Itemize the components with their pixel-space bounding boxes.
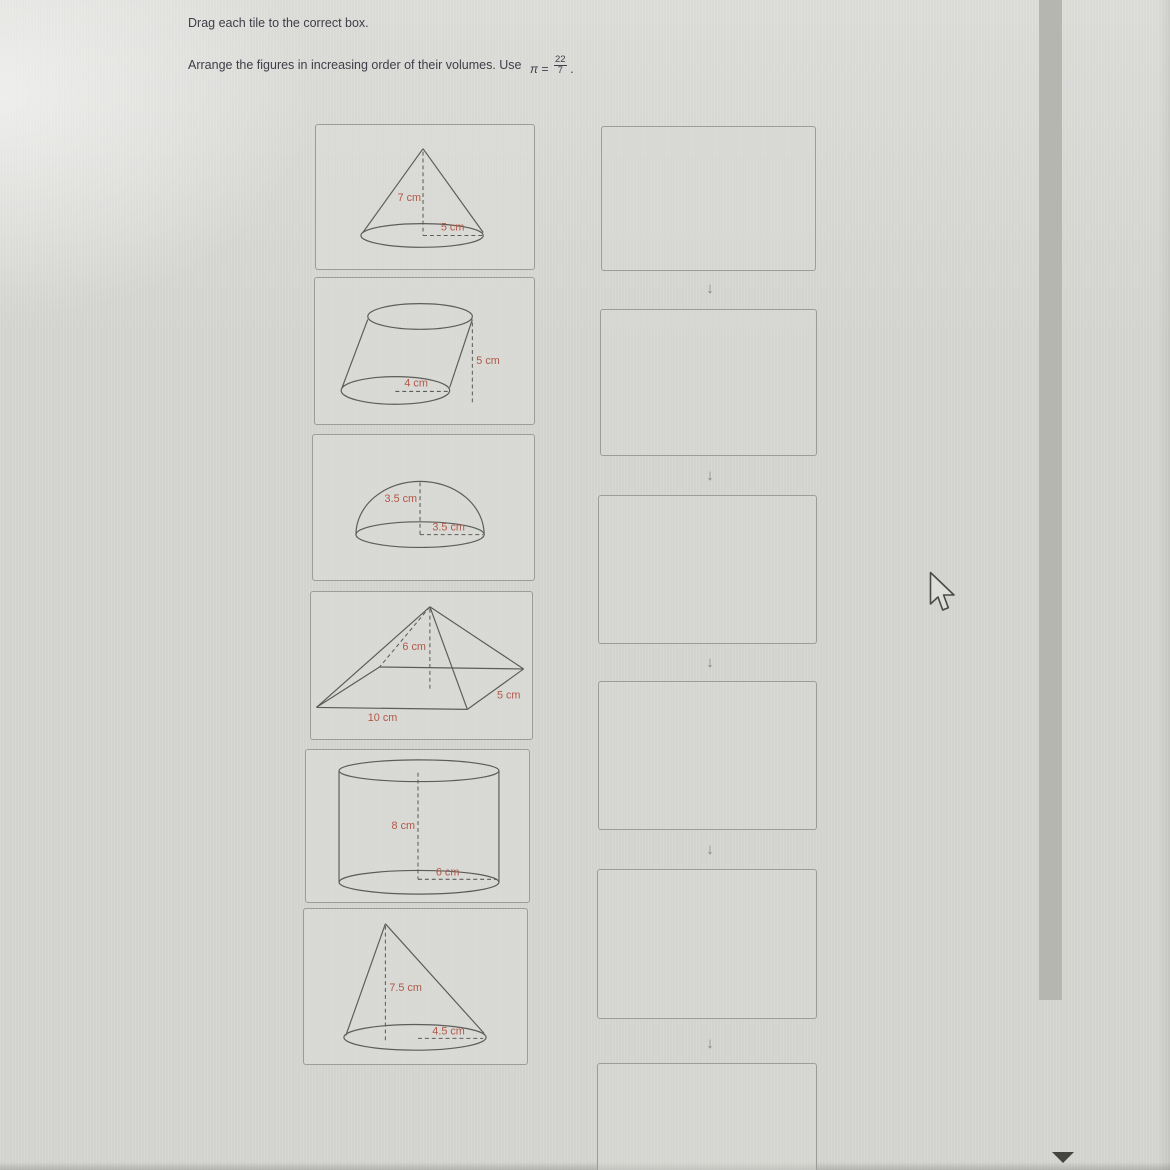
down-arrow-icon: ↓: [699, 841, 721, 858]
oblique-cylinder-figure: 5 cm 4 cm: [315, 278, 534, 424]
drop-box-5[interactable]: [597, 869, 817, 1019]
fraction-22-7: 22 7: [554, 55, 567, 76]
tile-oblique-cone[interactable]: 7.5 cm 4.5 cm: [303, 908, 528, 1065]
drop-box-6[interactable]: [597, 1063, 817, 1170]
quiz-screen: Drag each tile to the correct box. Arran…: [0, 0, 1170, 1170]
dimension-label-radius: 4.5 cm: [432, 1025, 465, 1037]
dimension-label-radius: 4 cm: [404, 378, 428, 390]
hemisphere-figure: 3.5 cm 3.5 cm: [313, 435, 534, 580]
drop-box-4[interactable]: [598, 681, 817, 830]
instruction-text: Arrange the figures in increasing order …: [188, 58, 522, 72]
scrollbar-thumb[interactable]: [1039, 0, 1062, 1000]
dimension-label-height: 8 cm: [392, 820, 416, 832]
down-arrow-icon: ↓: [699, 654, 721, 671]
cone-figure: 7 cm 5 cm: [316, 125, 534, 269]
dimension-label-height: 7 cm: [398, 192, 421, 204]
dimension-label-radius: 5 cm: [441, 222, 464, 234]
cylinder-figure: 8 cm 6 cm: [306, 750, 529, 902]
drop-box-1[interactable]: [601, 126, 816, 271]
tile-cone[interactable]: 7 cm 5 cm: [315, 124, 535, 270]
instruction-line-1: Drag each tile to the correct box.: [188, 16, 369, 30]
drop-box-2[interactable]: [600, 309, 817, 456]
fraction-denominator: 7: [558, 66, 563, 76]
drop-box-3[interactable]: [598, 495, 817, 644]
pi-symbol: π: [530, 62, 538, 76]
tile-pyramid[interactable]: 6 cm 5 cm 10 cm: [310, 591, 533, 740]
dimension-label-radius: 3.5 cm: [432, 522, 465, 534]
dimension-label-height: 7.5 cm: [389, 982, 422, 994]
instruction-line-2: Arrange the figures in increasing order …: [188, 58, 574, 80]
dimension-label-height: 3.5 cm: [385, 493, 418, 505]
down-arrow-icon: ↓: [699, 280, 721, 297]
pi-formula: π = 22 7 .: [530, 59, 574, 80]
mouse-cursor-icon: [929, 571, 959, 620]
dimension-label-length: 10 cm: [368, 712, 398, 724]
dimension-label-height: 5 cm: [476, 355, 500, 367]
tile-cylinder[interactable]: 8 cm 6 cm: [305, 749, 530, 903]
tile-oblique-cylinder[interactable]: 5 cm 4 cm: [314, 277, 535, 425]
scroll-down-icon[interactable]: [1052, 1152, 1074, 1163]
oblique-cone-figure: 7.5 cm 4.5 cm: [304, 909, 527, 1064]
pyramid-figure: 6 cm 5 cm 10 cm: [311, 592, 532, 739]
dimension-label-height: 6 cm: [402, 641, 426, 653]
equals-sign: =: [542, 62, 549, 76]
tile-hemisphere[interactable]: 3.5 cm 3.5 cm: [312, 434, 535, 581]
dimension-label-radius: 6 cm: [436, 866, 460, 878]
dimension-label-width: 5 cm: [497, 690, 521, 702]
down-arrow-icon: ↓: [699, 1035, 721, 1052]
sentence-period: .: [570, 62, 573, 76]
down-arrow-icon: ↓: [699, 467, 721, 484]
